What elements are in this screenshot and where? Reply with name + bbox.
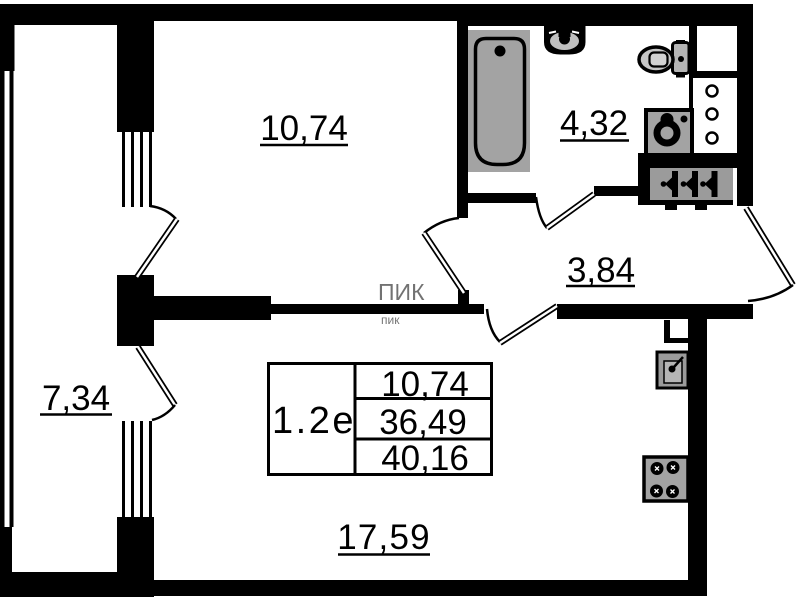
svg-text:ПИК: ПИК bbox=[378, 279, 425, 305]
svg-text:10,74: 10,74 bbox=[381, 365, 469, 404]
svg-text:10,74: 10,74 bbox=[260, 109, 348, 148]
svg-text:1.2е: 1.2е bbox=[272, 400, 356, 442]
svg-text:40,16: 40,16 bbox=[381, 439, 469, 478]
svg-text:7,34: 7,34 bbox=[42, 379, 110, 418]
svg-text:17,59: 17,59 bbox=[337, 518, 431, 557]
svg-text:36,49: 36,49 bbox=[379, 403, 467, 442]
svg-text:4,32: 4,32 bbox=[560, 104, 628, 143]
svg-text:3,84: 3,84 bbox=[567, 251, 635, 290]
svg-text:пик: пик bbox=[381, 313, 400, 327]
